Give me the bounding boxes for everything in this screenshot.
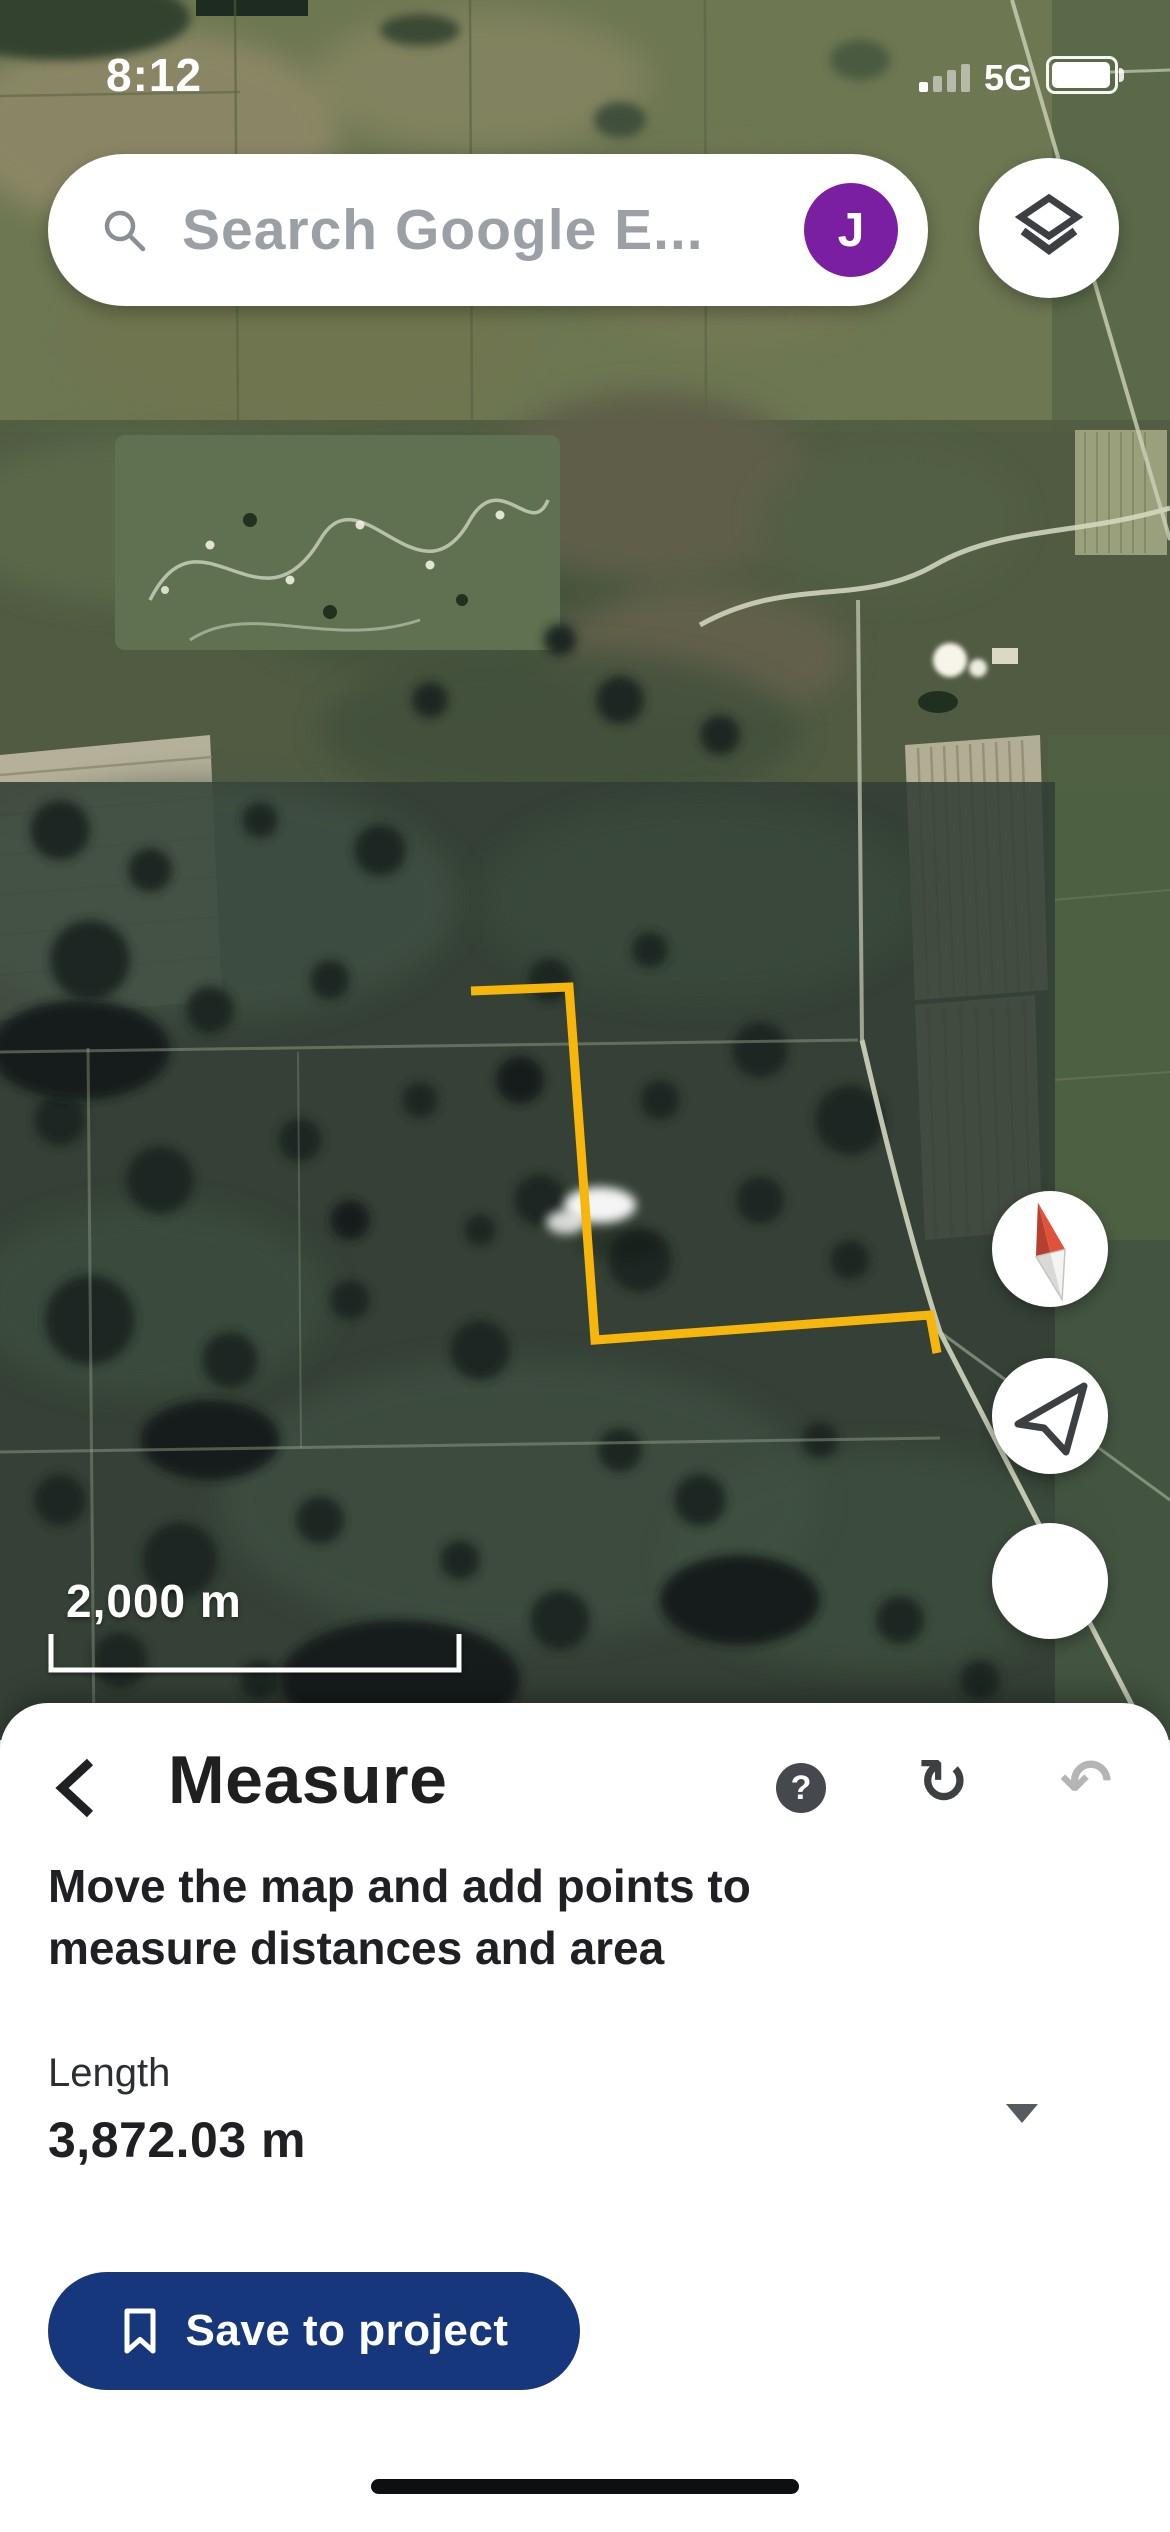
home-indicator[interactable] [371, 2479, 799, 2494]
undo-button[interactable]: ↶ [1048, 1739, 1124, 1823]
help-icon: ? [791, 1769, 812, 1808]
help-button[interactable]: ? [776, 1763, 826, 1813]
length-value: 3,872.03 m [48, 2111, 306, 2169]
status-bar: 8:12 5G [0, 0, 1170, 120]
scale-bracket [48, 1630, 462, 1674]
search-icon [100, 206, 148, 254]
blank-circle-button[interactable] [992, 1523, 1108, 1639]
search-bar[interactable]: Search Google E... J [48, 154, 928, 306]
battery-icon [1046, 56, 1118, 94]
account-avatar[interactable]: J [804, 183, 898, 277]
save-button-label: Save to project [186, 2306, 509, 2356]
my-location-button[interactable] [992, 1358, 1108, 1474]
compass-button[interactable] [992, 1191, 1108, 1307]
back-button[interactable] [44, 1755, 104, 1821]
instruction-text: Move the map and add points to measure d… [48, 1855, 938, 1979]
my-location-icon [992, 1358, 1108, 1474]
layers-icon [1011, 190, 1087, 266]
search-input[interactable]: Search Google E... [182, 197, 804, 263]
save-to-project-button[interactable]: Save to project [48, 2272, 580, 2390]
measure-sheet: Measure ? ↻ ↶ Move the map and add point… [0, 1703, 1170, 2532]
compass-icon [992, 1191, 1108, 1307]
scale-label: 2,000 m [66, 1574, 462, 1628]
unit-dropdown[interactable] [1005, 2103, 1039, 2130]
length-label: Length [48, 2051, 170, 2096]
chevron-down-icon [1005, 2103, 1039, 2125]
map-scale-bar: 2,000 m [48, 1574, 462, 1674]
redo-icon: ↻ [917, 1745, 969, 1818]
undo-icon: ↶ [1060, 1745, 1112, 1818]
bookmark-icon [120, 2306, 160, 2356]
clock: 8:12 [106, 48, 202, 102]
chevron-left-icon [50, 1756, 98, 1820]
google-earth-mobile-screen: { "status_bar": { "time": "8:12", "netwo… [0, 0, 1170, 2532]
signal-strength-icon [919, 62, 970, 94]
redo-button[interactable]: ↻ [905, 1739, 981, 1823]
layers-button[interactable] [979, 158, 1119, 298]
page-title: Measure [168, 1741, 447, 1819]
network-type-label: 5G [984, 62, 1032, 94]
